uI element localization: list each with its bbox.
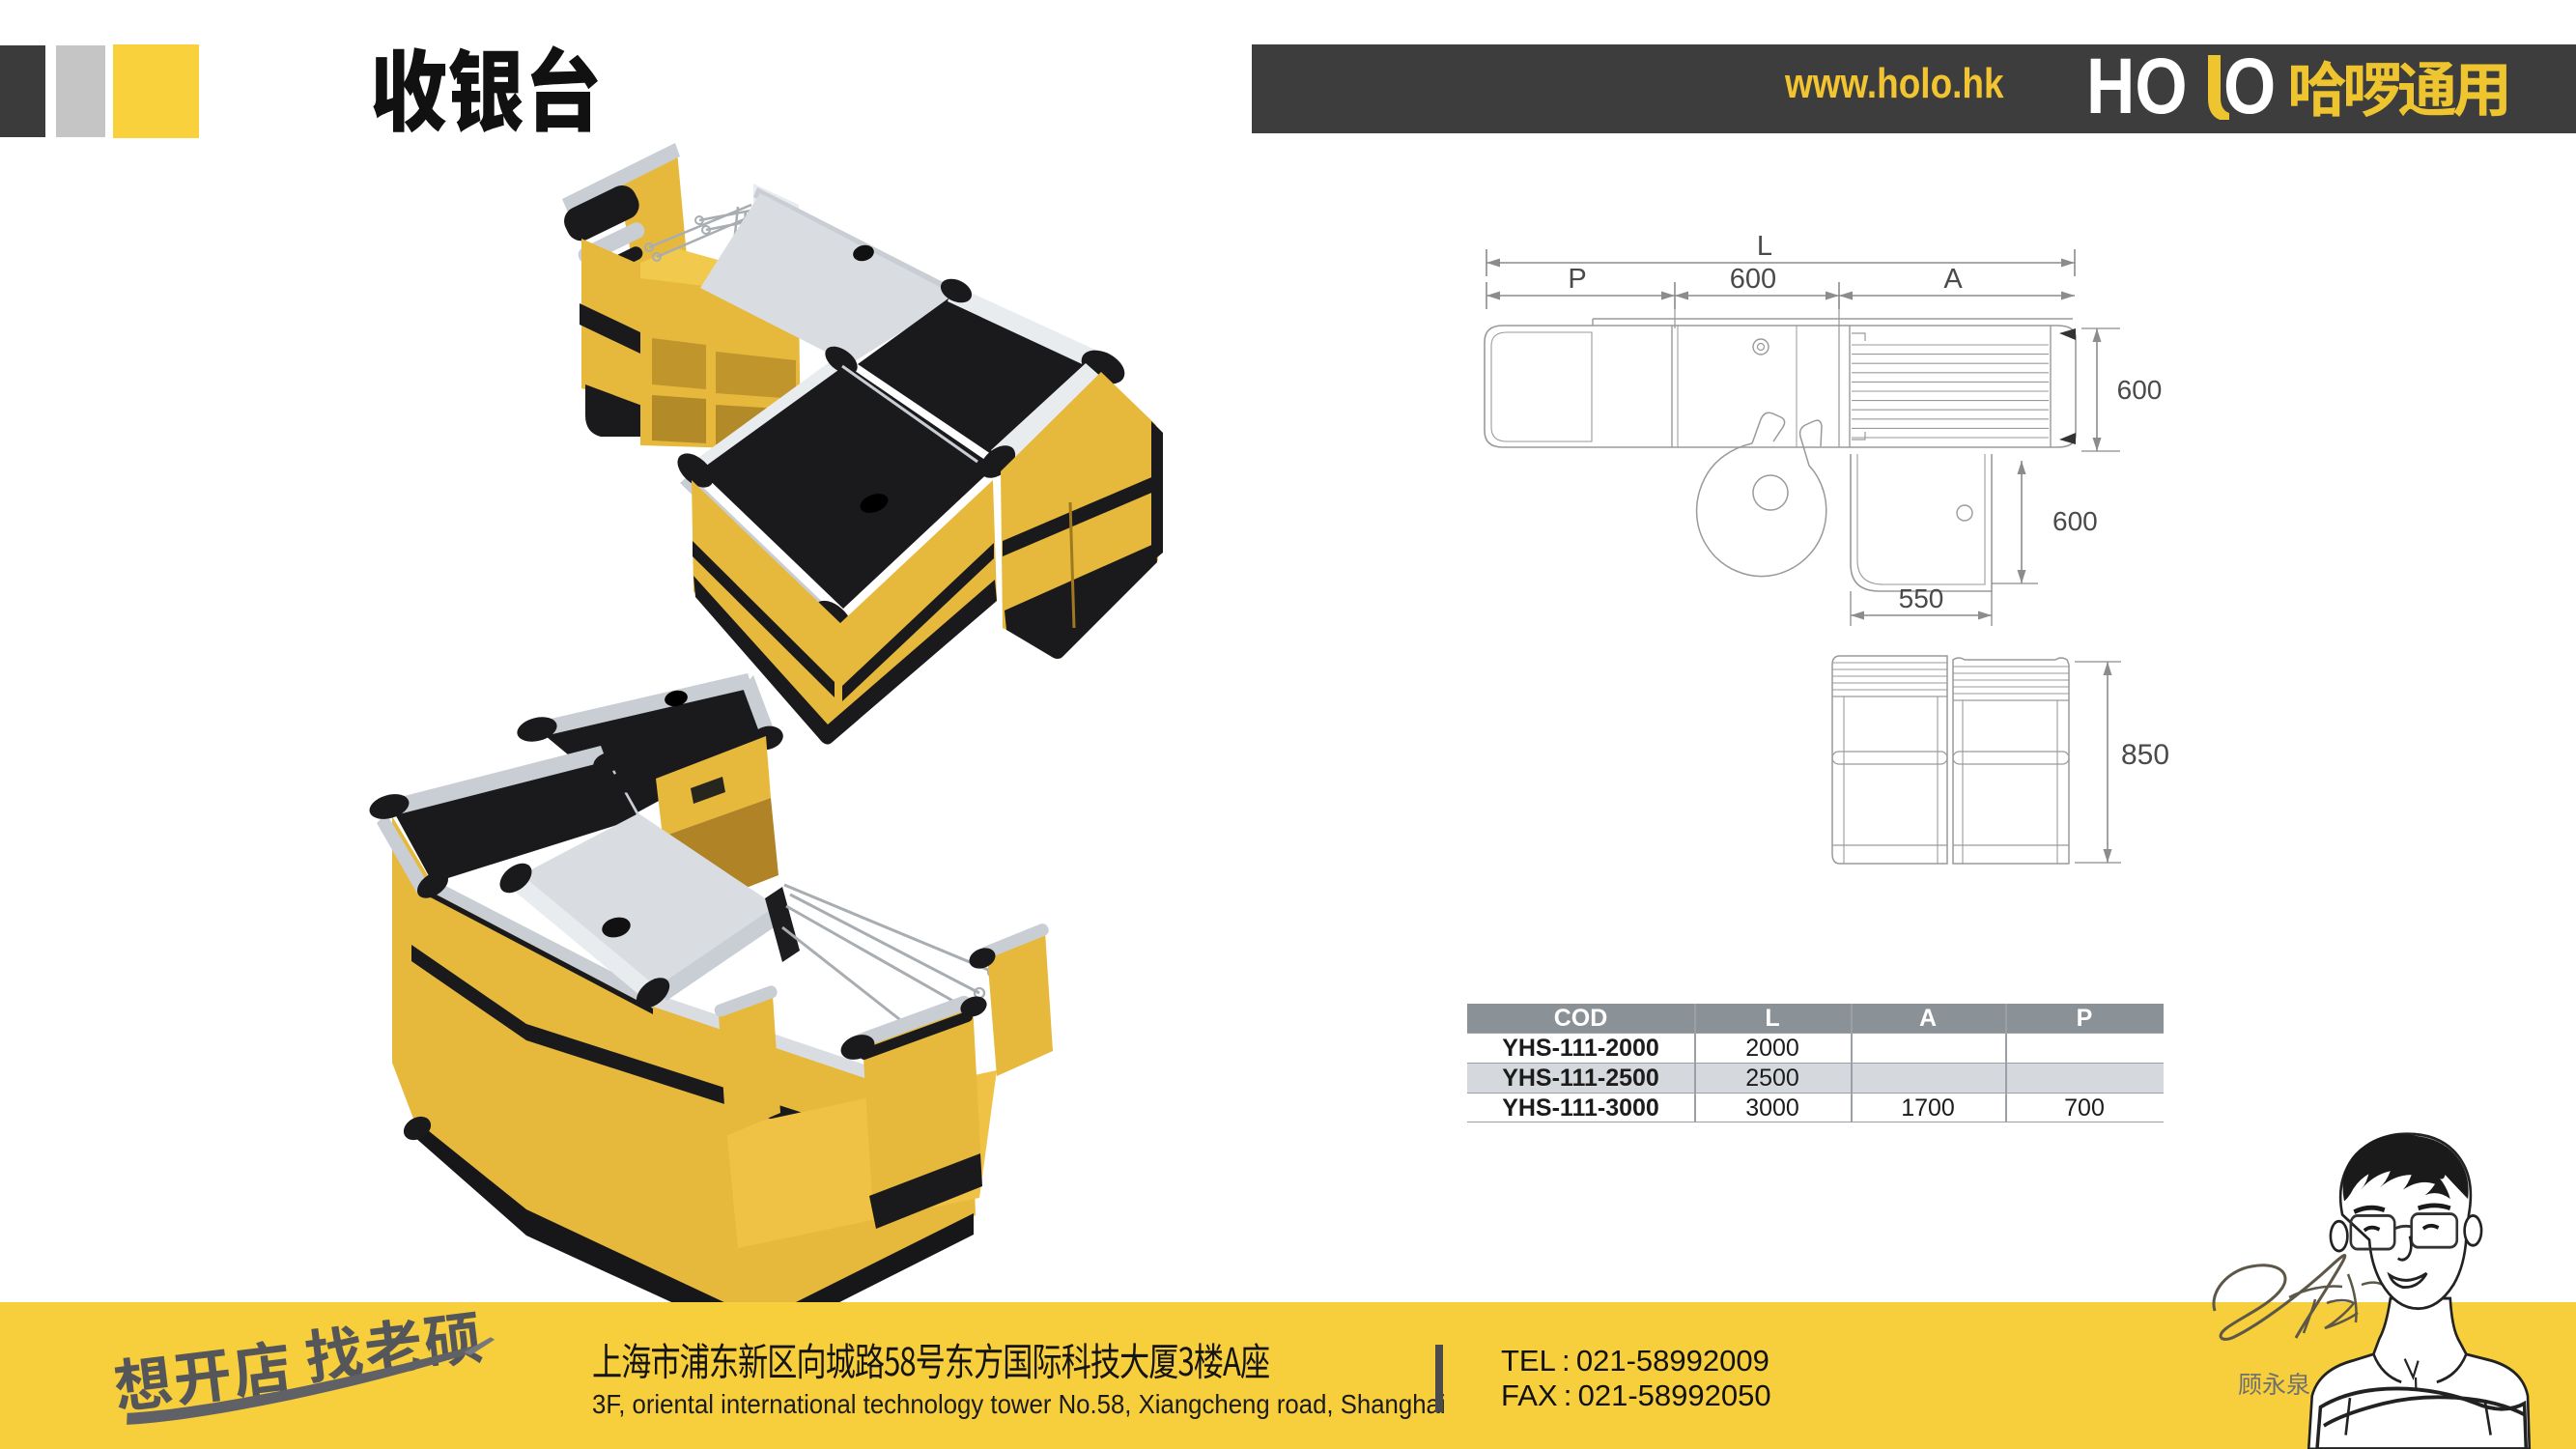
svg-text:A: A: [1943, 264, 1963, 295]
svg-text:600: 600: [2052, 506, 2098, 536]
svg-text:L: L: [1757, 232, 1772, 262]
svg-text:850: 850: [2121, 739, 2169, 771]
svg-text:550: 550: [1899, 583, 1944, 613]
svg-text:600: 600: [2117, 375, 2163, 405]
svg-text:P: P: [1568, 264, 1586, 295]
svg-text:600: 600: [1730, 264, 1776, 295]
